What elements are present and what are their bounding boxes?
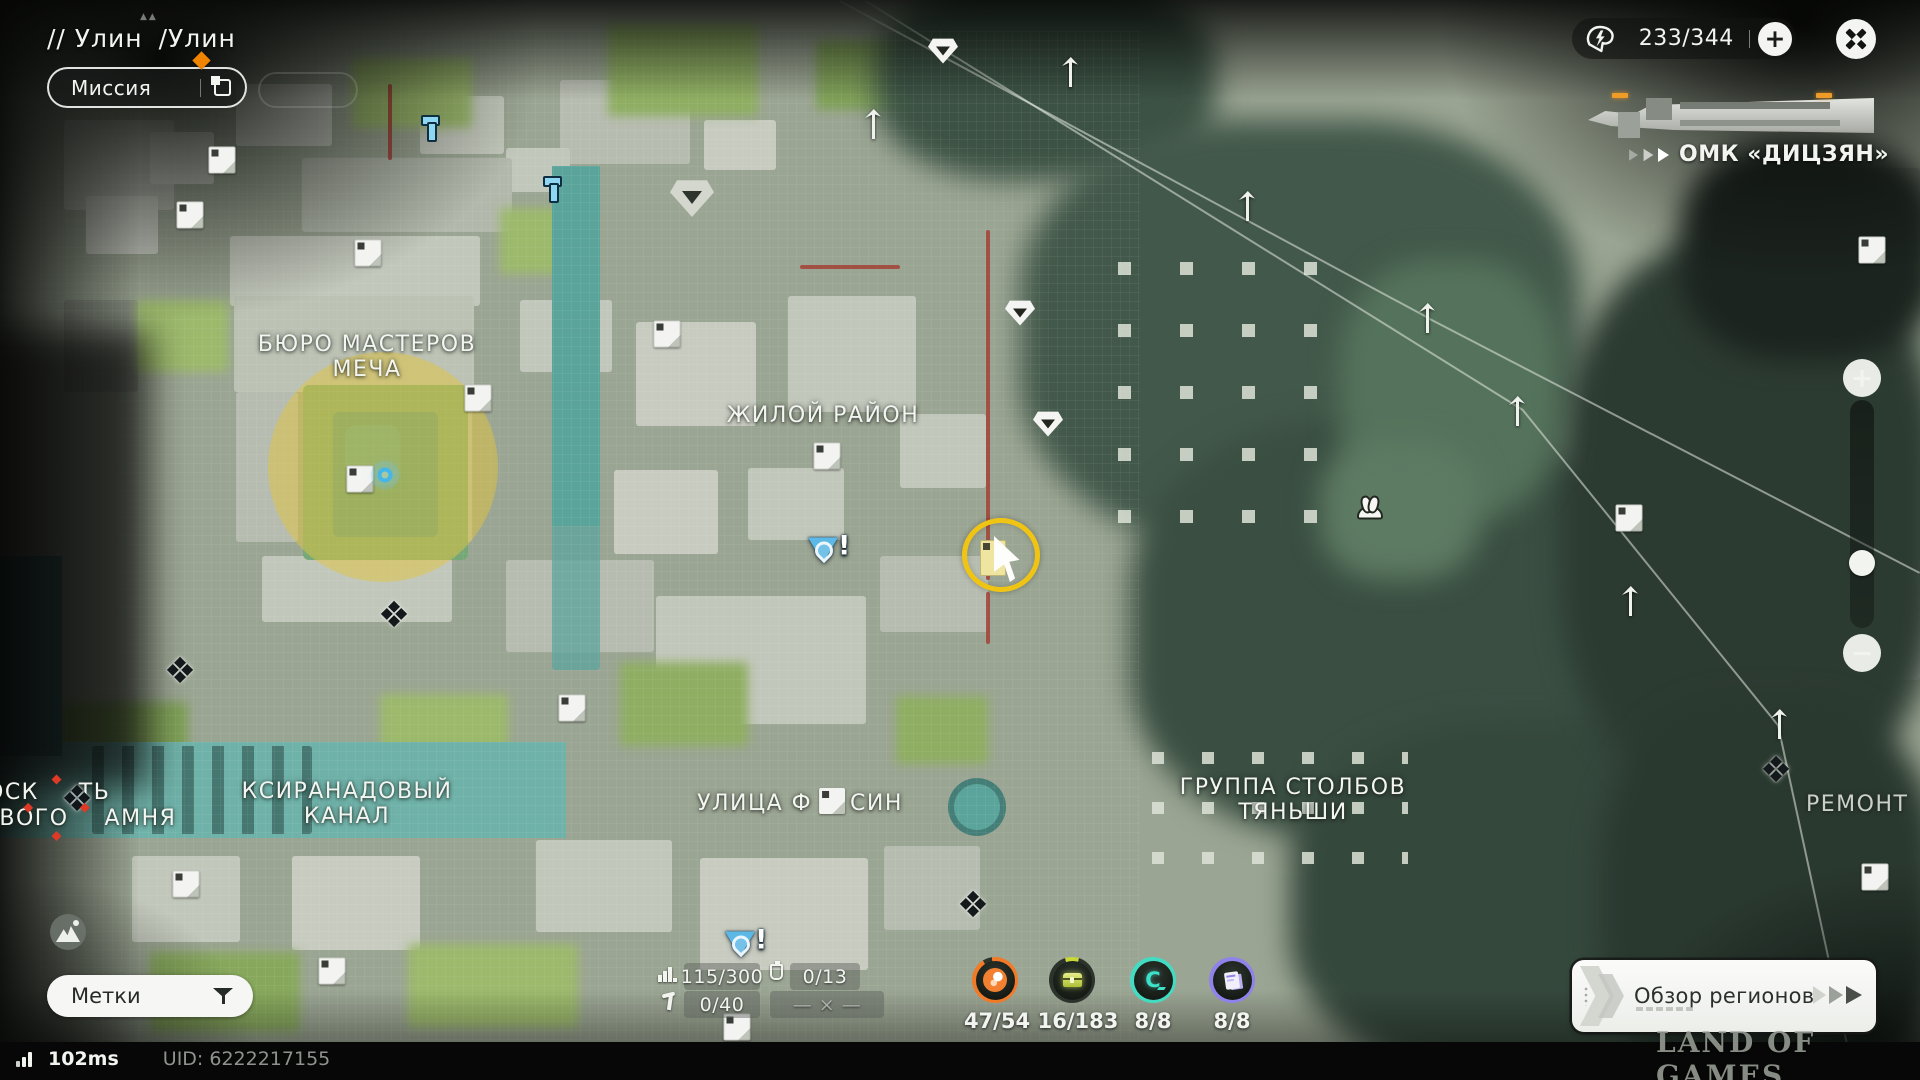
decor-ring bbox=[258, 72, 358, 108]
close-button[interactable] bbox=[1836, 19, 1876, 59]
exploration-icon bbox=[658, 964, 678, 984]
quest-marker[interactable] bbox=[808, 538, 838, 563]
region-subtext bbox=[1636, 1007, 1696, 1011]
terrain-toggle-button[interactable] bbox=[50, 914, 86, 950]
tower-marker[interactable] bbox=[1618, 586, 1642, 618]
emblem-marker[interactable] bbox=[1758, 753, 1794, 789]
breadcrumb-region: // Улин bbox=[47, 24, 143, 53]
locked-chip: — × — bbox=[770, 991, 884, 1018]
breadcrumb: // Улин /Улин bbox=[47, 24, 236, 53]
status-line: 102ms UID: 6222217155 bbox=[16, 1048, 330, 1070]
note-marker[interactable] bbox=[1862, 864, 1889, 891]
hammer-chip: 0/40 bbox=[684, 991, 760, 1018]
gembig-marker[interactable] bbox=[670, 177, 714, 217]
player-marker[interactable] bbox=[378, 468, 393, 483]
ship-detail bbox=[1680, 120, 1840, 126]
arrows-icon bbox=[1813, 986, 1862, 1004]
watermark: LAND OF GAMES bbox=[1656, 1026, 1920, 1080]
lantern-icon bbox=[770, 964, 783, 980]
note-marker[interactable] bbox=[465, 385, 492, 412]
swirl-orange-icon bbox=[983, 968, 1007, 992]
divider bbox=[200, 79, 202, 97]
bell-marker[interactable] bbox=[419, 113, 441, 141]
note-marker[interactable] bbox=[355, 240, 382, 267]
chest-icon bbox=[1063, 973, 1082, 987]
tower-marker[interactable] bbox=[1235, 191, 1259, 223]
arrow-icon bbox=[1644, 148, 1654, 161]
note-marker[interactable] bbox=[209, 147, 236, 174]
tracker-count: 233/344 bbox=[1626, 26, 1747, 51]
add-waypoint-button[interactable]: + bbox=[1758, 22, 1792, 56]
zoom-out-button[interactable]: − bbox=[1843, 634, 1881, 672]
hammer-icon bbox=[660, 992, 678, 1010]
ship-detail bbox=[1618, 112, 1640, 138]
cards-count: 8/8 bbox=[1182, 1009, 1282, 1033]
region-overview-button[interactable]: Обзор регионов bbox=[1572, 960, 1876, 1032]
emblem-counter[interactable]: C bbox=[1130, 957, 1176, 1003]
ship-name: ОМК «ДИЦЗЯН» bbox=[1628, 142, 1889, 167]
divider bbox=[1749, 30, 1751, 48]
lantern-chip: 0/13 bbox=[790, 963, 860, 990]
quest-marker[interactable] bbox=[725, 932, 755, 957]
note-marker[interactable] bbox=[319, 958, 346, 985]
marks-filter-button[interactable]: Метки bbox=[47, 975, 253, 1017]
ship-overview[interactable]: ОМК «ДИЦЗЯН» bbox=[1588, 86, 1888, 172]
gem-marker[interactable] bbox=[1033, 410, 1063, 437]
zoom-slider-track[interactable] bbox=[1850, 400, 1874, 628]
ship-detail bbox=[1646, 98, 1672, 120]
note-marker[interactable] bbox=[347, 466, 374, 493]
region-overview-label: Обзор регионов bbox=[1634, 984, 1814, 1008]
ship-light bbox=[1612, 93, 1628, 98]
breadcrumb-subregion: /Улин bbox=[159, 24, 236, 53]
note-marker[interactable] bbox=[1859, 237, 1886, 264]
tower-marker[interactable] bbox=[1058, 57, 1082, 89]
tower-marker[interactable] bbox=[1415, 303, 1439, 335]
mission-label: Миссия bbox=[71, 76, 200, 100]
challenge-counter[interactable] bbox=[972, 957, 1018, 1003]
emblem-marker[interactable] bbox=[955, 888, 991, 924]
bell-marker[interactable] bbox=[541, 174, 563, 202]
tower-marker[interactable] bbox=[1505, 396, 1529, 428]
emblem-marker[interactable] bbox=[376, 598, 412, 634]
note-marker[interactable] bbox=[814, 443, 841, 470]
arrow-icon bbox=[1658, 148, 1669, 162]
cards-counter[interactable] bbox=[1209, 957, 1255, 1003]
note-marker[interactable] bbox=[177, 202, 204, 229]
emblem-marker[interactable] bbox=[162, 654, 198, 690]
mission-icon bbox=[214, 79, 231, 96]
cards-icon bbox=[1224, 971, 1240, 990]
ship-detail bbox=[1680, 102, 1830, 109]
tower-marker[interactable] bbox=[861, 109, 885, 141]
waypoint-tracker: 233/344 + bbox=[1572, 18, 1796, 59]
energy-icon bbox=[1584, 24, 1616, 54]
arrow-icon bbox=[1629, 149, 1638, 160]
note-marker[interactable] bbox=[654, 321, 681, 348]
filter-icon bbox=[213, 987, 233, 1005]
note-marker[interactable] bbox=[1616, 505, 1643, 532]
tower-marker[interactable] bbox=[1767, 709, 1791, 741]
uid-value: UID: 6222217155 bbox=[163, 1048, 330, 1070]
gem-marker[interactable] bbox=[928, 37, 958, 64]
rabbit-marker[interactable] bbox=[1357, 507, 1383, 520]
zoom-in-button[interactable]: + bbox=[1843, 359, 1881, 397]
ship-light bbox=[1816, 93, 1832, 98]
ping-value: 102ms bbox=[48, 1048, 119, 1070]
zoom-slider-knob[interactable] bbox=[1849, 550, 1875, 576]
note-marker[interactable] bbox=[173, 871, 200, 898]
decor-triangles: ▲▲ bbox=[140, 12, 158, 22]
chest-counter[interactable] bbox=[1049, 957, 1095, 1003]
mission-button[interactable]: Миссия bbox=[47, 67, 247, 108]
emblem-c-icon: C bbox=[1145, 970, 1160, 991]
emblemsel-marker[interactable] bbox=[59, 782, 95, 818]
marks-label: Метки bbox=[71, 984, 213, 1008]
note-marker[interactable] bbox=[559, 695, 586, 722]
signal-icon bbox=[16, 1051, 38, 1067]
exploration-chip: 115/300 bbox=[684, 963, 760, 990]
decor-dots bbox=[1583, 986, 1589, 1006]
gem-marker[interactable] bbox=[1005, 299, 1035, 326]
map-screen: БЮРО МАСТЕРОВ МЕЧА ЖИЛОЙ РАЙОН КСИРАНАДО… bbox=[0, 0, 1920, 1080]
